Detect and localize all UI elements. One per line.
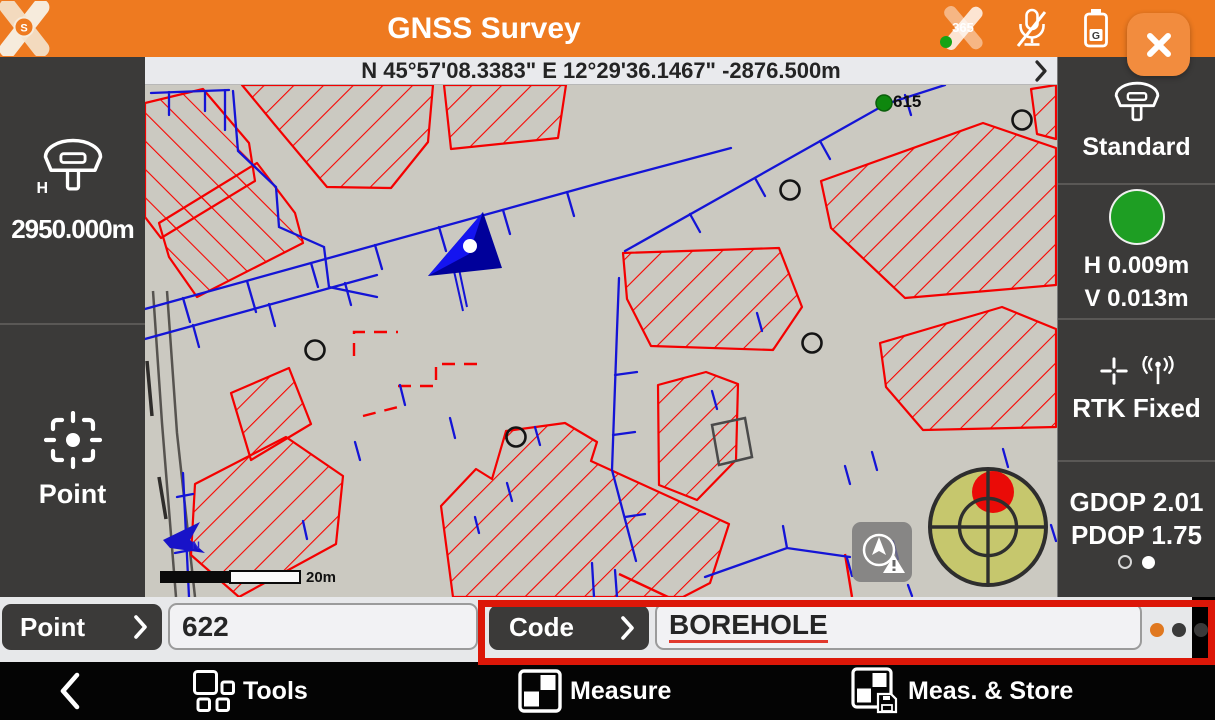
accuracy-tile[interactable]: H 0.009m V 0.013m (1058, 185, 1215, 320)
point-field-label: Point (20, 612, 85, 643)
measure-store-icon (851, 667, 901, 715)
overflow-dot (1172, 623, 1186, 637)
compass-warning-button[interactable] (852, 522, 912, 582)
tools-widgets-icon (192, 669, 236, 713)
pdop-value: PDOP 1.75 (1071, 519, 1202, 552)
antenna-h-sub: H (37, 180, 49, 198)
scale-label: 20m (306, 569, 336, 586)
code-field-label: Code (509, 612, 574, 643)
map-area[interactable]: N 45°57'08.3383" E 12°29'36.1467" -2876.… (145, 57, 1057, 597)
radio-signal-icon (1141, 356, 1175, 386)
receiver-antenna-icon (1105, 79, 1169, 129)
h-accuracy: H 0.009m (1084, 251, 1189, 280)
left-sidebar: H 2950.000m Point (0, 57, 145, 597)
chevron-right-icon (620, 615, 636, 641)
measure-button[interactable]: Measure (517, 662, 671, 720)
code-field-button[interactable]: Code (489, 605, 649, 650)
back-chevron-icon (58, 672, 82, 710)
measure-label: Measure (570, 677, 671, 706)
fix-status-tile[interactable]: RTK Fixed (1058, 320, 1215, 462)
v-accuracy: V 0.013m (1084, 284, 1188, 313)
gdop-value: GDOP 2.01 (1070, 486, 1204, 519)
north-label: N (192, 540, 200, 552)
page-dot-filled (1142, 556, 1155, 569)
point-field-button[interactable]: Point (2, 604, 162, 650)
attribute-input-row: Point 622 Code BOREHOLE (0, 597, 1215, 662)
code-input[interactable]: BOREHOLE (655, 603, 1142, 650)
dop-tile[interactable]: GDOP 2.01 PDOP 1.75 (1058, 462, 1215, 593)
mic-muted-icon[interactable] (1012, 7, 1050, 50)
page-dot-outline (1118, 555, 1132, 569)
cloud-365-status-icon[interactable]: 365 (936, 6, 990, 52)
surveyed-point-615: 615 (876, 92, 921, 111)
crosshair-plus-icon (1099, 356, 1129, 386)
tools-button[interactable]: Tools (192, 662, 308, 720)
meas-store-label: Meas. & Store (908, 677, 1073, 706)
point-crosshair-icon (44, 411, 102, 469)
app-bar: S GNSS Survey 365 G (0, 0, 1215, 57)
bottom-toolbar: Tools Measure Meas. & Store (0, 662, 1215, 720)
right-sidebar: Standard H 0.009m V 0.013m RTK Fixed GDO… (1057, 57, 1215, 597)
antenna-height-tile[interactable]: H 2950.000m (0, 57, 145, 325)
coordinates-text: N 45°57'08.3383" E 12°29'36.1467" -2876.… (361, 58, 841, 84)
chevron-right-icon (133, 614, 149, 640)
battery-letter: G (1092, 30, 1100, 42)
gnss-survey-screen: S GNSS Survey 365 G (0, 0, 1215, 720)
close-button[interactable] (1127, 13, 1190, 76)
point-615-label: 615 (893, 92, 921, 111)
point-number-value: 622 (182, 611, 229, 643)
fix-status-label: RTK Fixed (1072, 392, 1201, 425)
point-mode-label: Point (39, 479, 107, 510)
back-button[interactable] (58, 662, 82, 720)
profile-label: Standard (1082, 133, 1190, 162)
measure-icon (517, 668, 563, 714)
battery-gnss-icon[interactable]: G (1082, 7, 1110, 50)
code-value: BOREHOLE (669, 611, 828, 643)
page-title: GNSS Survey (0, 0, 968, 57)
overflow-dot (1194, 623, 1208, 637)
cad-map-canvas[interactable]: 615 N 20m (145, 85, 1057, 597)
overflow-menu-dots[interactable] (1150, 597, 1208, 662)
measure-and-store-button[interactable]: Meas. & Store (851, 662, 1073, 720)
receiver-profile-tile[interactable]: Standard (1058, 57, 1215, 185)
coordinate-bar[interactable]: N 45°57'08.3383" E 12°29'36.1467" -2876.… (145, 57, 1057, 85)
point-number-input[interactable]: 622 (168, 603, 478, 650)
chevron-right-icon (1034, 60, 1048, 82)
close-icon (1142, 28, 1176, 62)
badge-365-label: 365 (952, 20, 974, 35)
panel-page-dots[interactable] (1118, 555, 1155, 569)
antenna-height-value: 2950.000m (11, 214, 134, 245)
tools-label: Tools (243, 677, 308, 706)
overflow-dot-orange (1150, 623, 1164, 637)
bubble-level-indicator (930, 469, 1046, 585)
point-mode-tile[interactable]: Point (0, 325, 145, 595)
fix-quality-green-dot (1111, 191, 1163, 243)
connection-green-dot (940, 36, 952, 48)
